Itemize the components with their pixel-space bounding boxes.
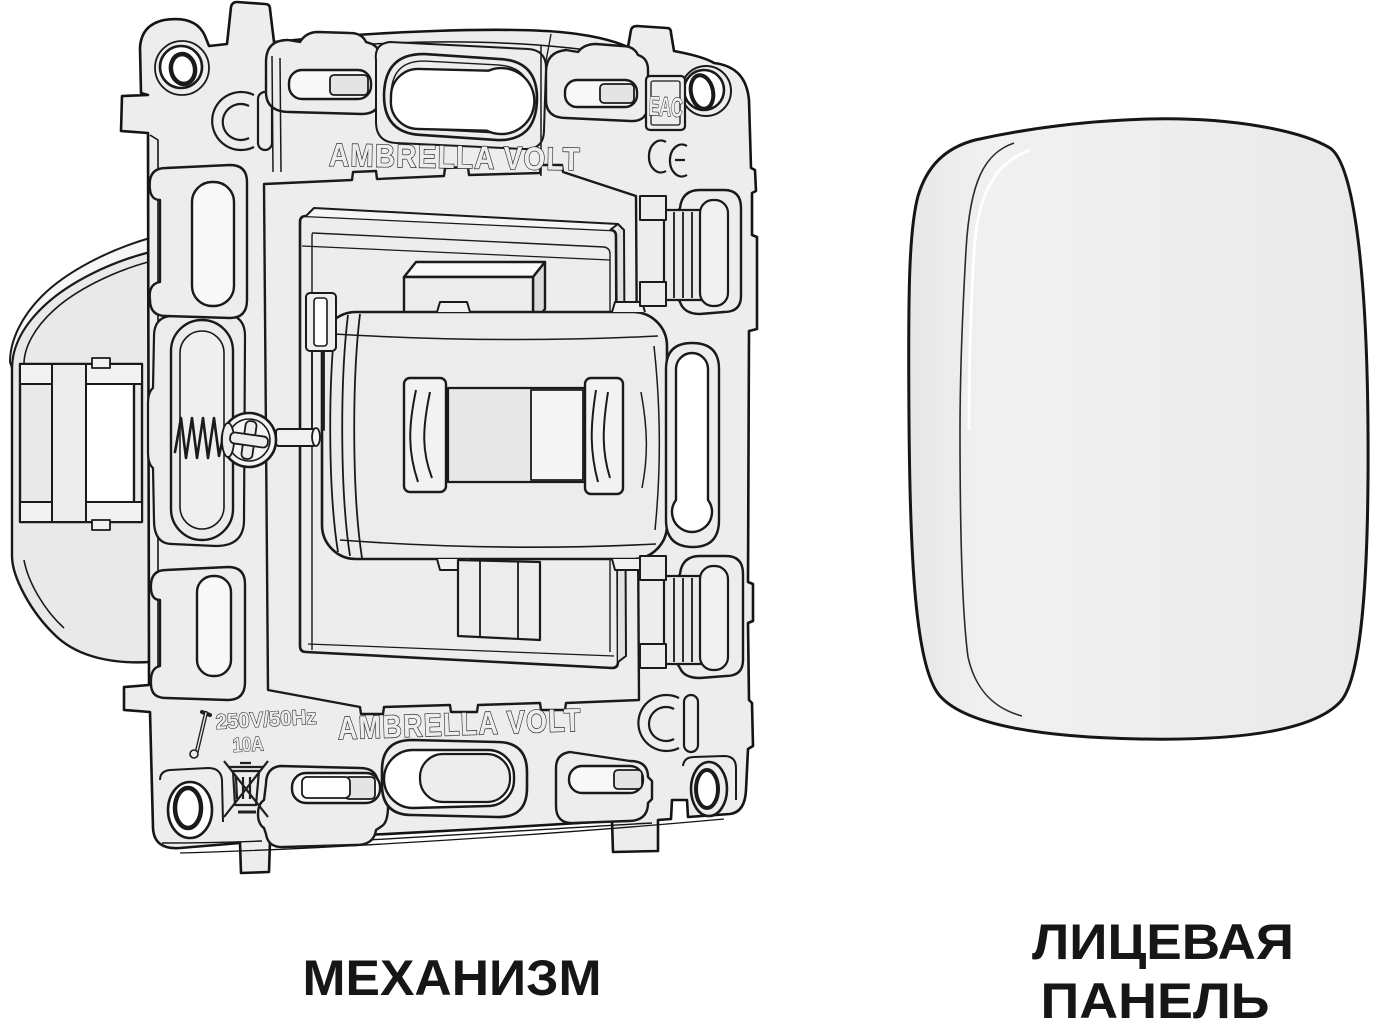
svg-text:ЛИЦЕВАЯ: ЛИЦЕВАЯ	[1032, 914, 1294, 970]
svg-text:EAC: EAC	[648, 91, 684, 123]
svg-text:ПАНЕЛЬ: ПАНЕЛЬ	[1041, 973, 1270, 1024]
svg-text:AMBRELLA VOLT: AMBRELLA VOLT	[329, 137, 582, 177]
svg-text:МЕХАНИЗМ: МЕХАНИЗМ	[303, 950, 602, 1006]
svg-text:10A: 10A	[232, 733, 264, 757]
